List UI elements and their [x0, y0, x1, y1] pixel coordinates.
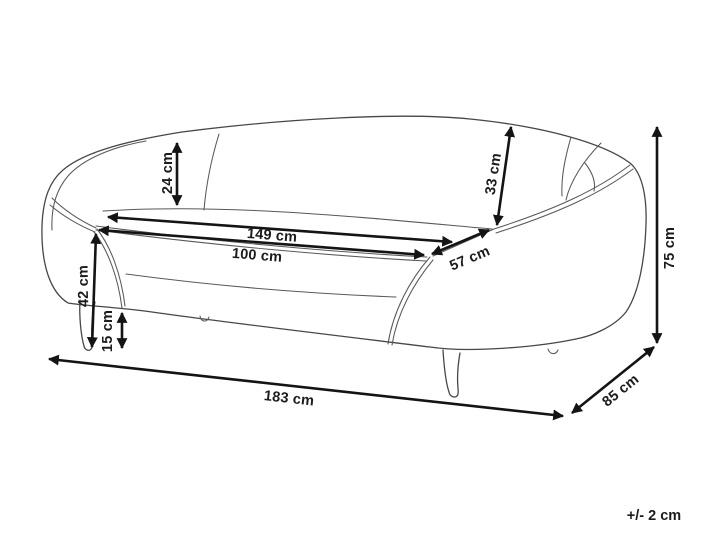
- base-front-seam: [126, 274, 396, 297]
- dimension-label-backrest-height-left: 24 cm: [160, 152, 176, 194]
- dimension-line-seat-height: [92, 234, 96, 347]
- dimension-label-overall-depth: 85 cm: [599, 371, 642, 410]
- dimension-label-seat-depth-right: 57 cm: [447, 243, 492, 274]
- backrest-left-seam: [204, 134, 219, 210]
- tolerance-note: +/- 2 cm: [627, 508, 681, 524]
- dimension-label-seat-height: 42 cm: [75, 265, 92, 307]
- rear-right-leg-peg: [548, 349, 558, 354]
- front-right-leg: [443, 350, 460, 397]
- dimension-label-overall-height: 75 cm: [662, 227, 678, 269]
- right-rim-piping-1: [494, 165, 630, 229]
- dimension-label-seat-width-inner: 100 cm: [231, 246, 283, 266]
- left-armrest-front-edge-1: [97, 229, 125, 306]
- diagram-canvas: 24 cm 33 cm 149 cm 100 cm 57 cm 42 cm 15…: [0, 0, 720, 540]
- dimension-label-overall-width: 183 cm: [263, 388, 315, 409]
- right-armrest-crescent-inner: [585, 163, 595, 191]
- seat-back-boundary: [103, 209, 492, 229]
- left-armrest-piping-2: [50, 205, 95, 232]
- sofa-dimension-diagram: 24 cm 33 cm 149 cm 100 cm 57 cm 42 cm 15…: [0, 0, 720, 540]
- right-rim-piping-2: [496, 169, 633, 233]
- dimension-lines: [49, 127, 657, 416]
- left-armrest-piping-1: [52, 198, 96, 228]
- dimension-label-leg-height: 15 cm: [100, 310, 116, 352]
- right-armrest-crescent-seam: [566, 143, 601, 200]
- right-armrest-front-edge-2: [392, 260, 433, 345]
- sofa-drawing: [42, 116, 646, 397]
- right-armrest-front-edge-1: [388, 257, 430, 344]
